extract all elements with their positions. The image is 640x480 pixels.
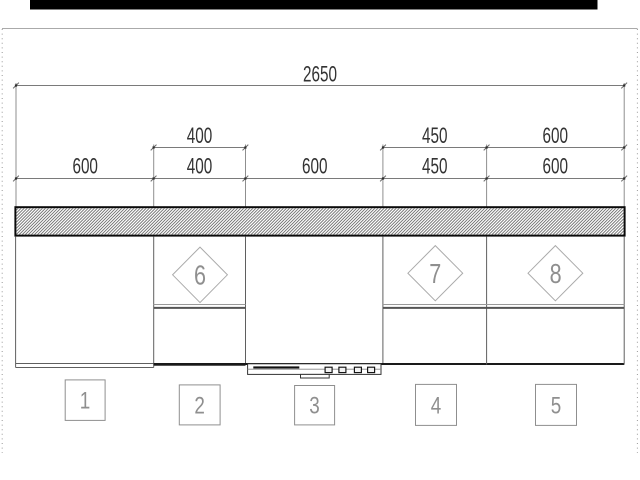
svg-text:450: 450 bbox=[422, 153, 448, 178]
svg-text:600: 600 bbox=[302, 153, 328, 178]
svg-text:2: 2 bbox=[194, 392, 205, 419]
svg-text:3: 3 bbox=[309, 392, 320, 419]
svg-text:7: 7 bbox=[429, 258, 441, 289]
svg-text:400: 400 bbox=[187, 123, 213, 148]
svg-text:1: 1 bbox=[80, 387, 91, 414]
svg-text:400: 400 bbox=[187, 153, 213, 178]
svg-text:450: 450 bbox=[422, 123, 448, 148]
svg-text:2650: 2650 bbox=[303, 61, 337, 86]
svg-text:8: 8 bbox=[550, 258, 562, 289]
svg-text:600: 600 bbox=[543, 153, 569, 178]
svg-text:4: 4 bbox=[431, 392, 442, 419]
svg-text:5: 5 bbox=[551, 392, 562, 419]
svg-text:600: 600 bbox=[543, 123, 569, 148]
svg-text:6: 6 bbox=[194, 260, 206, 291]
svg-text:600: 600 bbox=[72, 153, 98, 178]
